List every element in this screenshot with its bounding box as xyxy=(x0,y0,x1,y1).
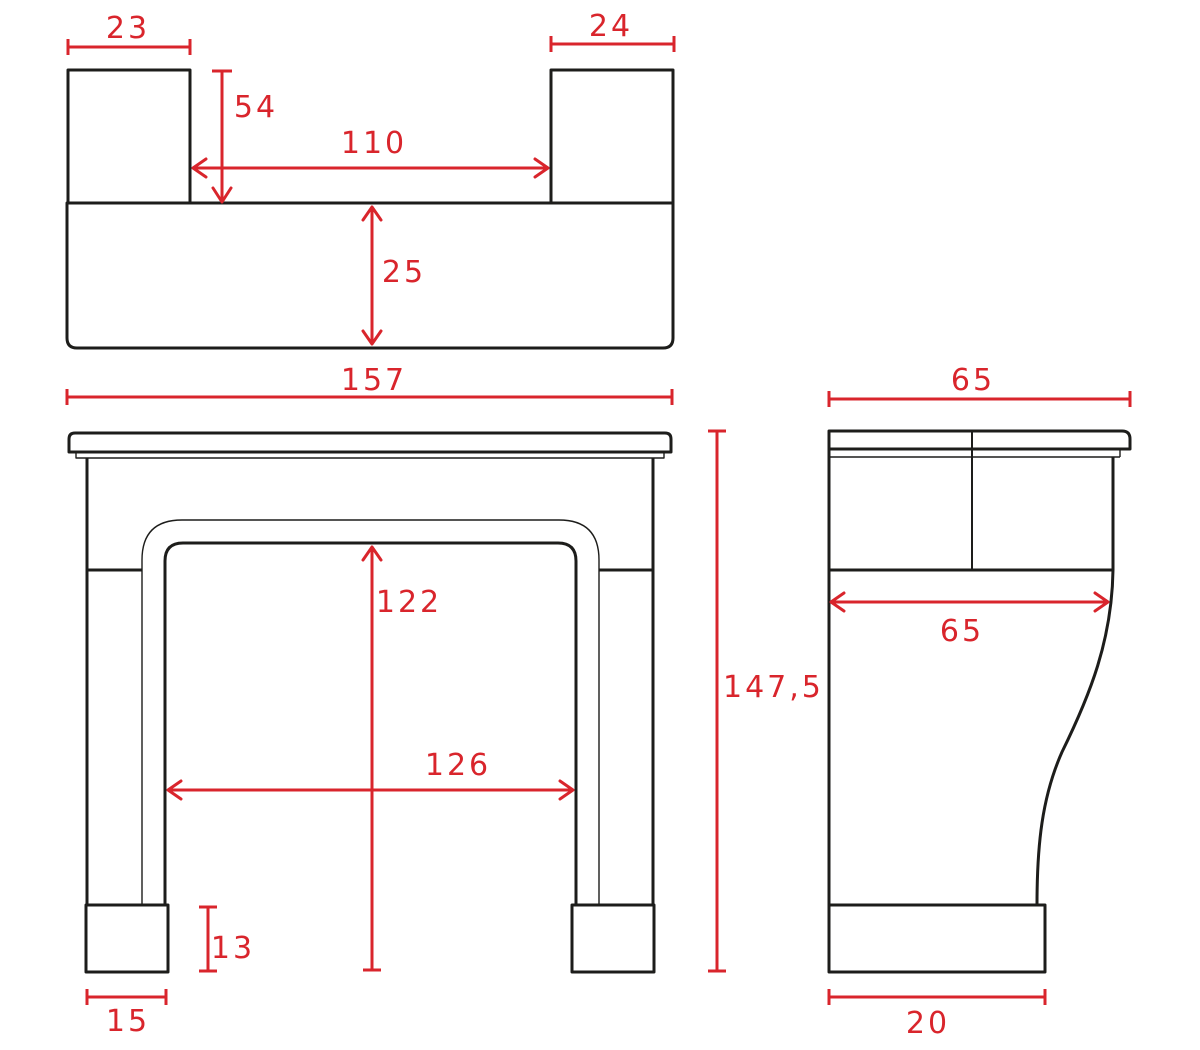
dim-label-plinth-depth: 20 xyxy=(906,1006,950,1041)
dim-label-shelf-depth-side: 65 xyxy=(951,363,995,398)
dim-label-plinth-height: 13 xyxy=(211,931,255,966)
dim-label-right-block-width: 24 xyxy=(589,9,633,44)
side-plinth xyxy=(829,905,1045,972)
side-view xyxy=(829,431,1130,972)
top-view-left-block xyxy=(68,70,190,203)
top-view-right-block xyxy=(551,70,673,203)
front-view xyxy=(69,433,671,972)
dim-label-inner-width: 110 xyxy=(341,126,407,161)
front-view-dimensions: 157 147,5 122 126 13 15 xyxy=(67,363,824,1039)
front-left-plinth xyxy=(86,905,168,972)
front-right-plinth xyxy=(572,905,654,972)
dim-label-return-depth: 54 xyxy=(234,90,278,125)
dim-label-frieze-depth: 65 xyxy=(940,614,984,649)
side-shelf-top-band xyxy=(829,431,1130,449)
fireplace-technical-drawing: 23 24 54 110 25 157 147,5 xyxy=(0,0,1200,1050)
front-shelf-top-band xyxy=(69,433,671,452)
dim-label-overall-width: 157 xyxy=(341,363,407,398)
side-console-curve xyxy=(1037,457,1113,905)
dim-label-opening-height: 122 xyxy=(376,585,442,620)
dim-label-overall-height: 147,5 xyxy=(723,670,824,705)
drawing-canvas: 23 24 54 110 25 157 147,5 xyxy=(0,0,1200,1050)
dim-label-plinth-width: 15 xyxy=(106,1004,150,1039)
dim-label-left-block-width: 23 xyxy=(106,11,150,46)
dim-label-opening-width: 126 xyxy=(425,748,491,783)
dim-label-shelf-depth: 25 xyxy=(382,255,426,290)
top-view-dimensions: 23 24 54 110 25 xyxy=(68,9,674,344)
top-view-shelf-slab xyxy=(67,203,673,348)
